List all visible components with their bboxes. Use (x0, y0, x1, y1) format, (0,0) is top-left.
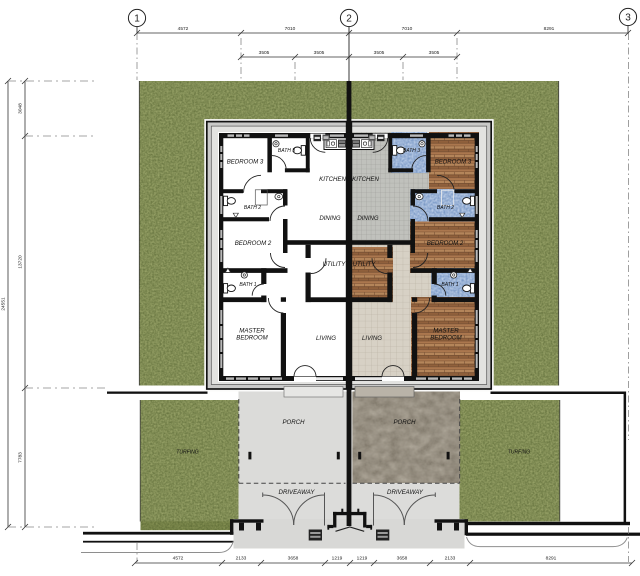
svg-text:TURFING: TURFING (176, 450, 198, 456)
svg-text:DINING: DINING (357, 215, 379, 222)
svg-text:3505: 3505 (259, 50, 270, 56)
svg-text:1219: 1219 (332, 556, 343, 562)
svg-text:BATH 2: BATH 2 (244, 205, 261, 211)
svg-text:3505: 3505 (429, 50, 440, 56)
svg-text:UTILITY: UTILITY (323, 261, 347, 268)
svg-text:BEDROOM 3: BEDROOM 3 (435, 159, 472, 166)
svg-text:BATH 1: BATH 1 (239, 282, 256, 288)
svg-text:BATH 2: BATH 2 (437, 205, 454, 211)
svg-text:7783: 7783 (18, 452, 24, 463)
svg-text:1219: 1219 (357, 556, 368, 562)
svg-text:MASTER: MASTER (239, 328, 265, 335)
svg-text:13720: 13720 (18, 255, 24, 269)
svg-text:3658: 3658 (397, 556, 408, 562)
svg-text:2133: 2133 (236, 556, 247, 562)
svg-text:3: 3 (625, 13, 631, 24)
svg-text:BEDROOM 2: BEDROOM 2 (427, 240, 464, 247)
svg-text:4572: 4572 (178, 26, 189, 32)
svg-text:2133: 2133 (445, 556, 456, 562)
svg-text:PORCH: PORCH (393, 419, 416, 426)
svg-text:BEDROOM: BEDROOM (236, 335, 268, 342)
svg-text:KITCHEN: KITCHEN (319, 176, 346, 183)
svg-text:4572: 4572 (173, 556, 184, 562)
svg-text:BATH 3: BATH 3 (403, 148, 420, 154)
svg-text:8291: 8291 (546, 556, 557, 562)
svg-text:1: 1 (134, 14, 140, 25)
svg-text:LIVING: LIVING (316, 335, 336, 342)
svg-text:8291: 8291 (544, 26, 555, 32)
svg-text:DRIVEAWAY: DRIVEAWAY (387, 489, 424, 496)
svg-text:7010: 7010 (402, 26, 413, 32)
svg-text:BEDROOM: BEDROOM (430, 335, 462, 342)
svg-text:DINING: DINING (319, 215, 341, 222)
svg-text:UTILITY: UTILITY (353, 261, 377, 268)
svg-text:2: 2 (346, 14, 352, 25)
svg-text:3048: 3048 (18, 103, 24, 114)
svg-text:KITCHEN: KITCHEN (352, 176, 379, 183)
svg-text:BEDROOM 2: BEDROOM 2 (235, 240, 272, 247)
svg-text:3505: 3505 (314, 50, 325, 56)
svg-text:3505: 3505 (374, 50, 385, 56)
svg-text:LIVING: LIVING (362, 335, 382, 342)
svg-text:MASTER: MASTER (433, 328, 459, 335)
svg-text:7010: 7010 (285, 26, 296, 32)
svg-text:24551: 24551 (1, 297, 7, 311)
svg-text:TURFING: TURFING (508, 450, 530, 456)
svg-text:3658: 3658 (288, 556, 299, 562)
svg-text:PORCH: PORCH (282, 419, 305, 426)
svg-text:BEDROOM 3: BEDROOM 3 (227, 159, 264, 166)
svg-text:DRIVEAWAY: DRIVEAWAY (279, 489, 316, 496)
svg-text:BATH 3: BATH 3 (278, 148, 295, 154)
svg-text:BATH 1: BATH 1 (441, 282, 458, 288)
